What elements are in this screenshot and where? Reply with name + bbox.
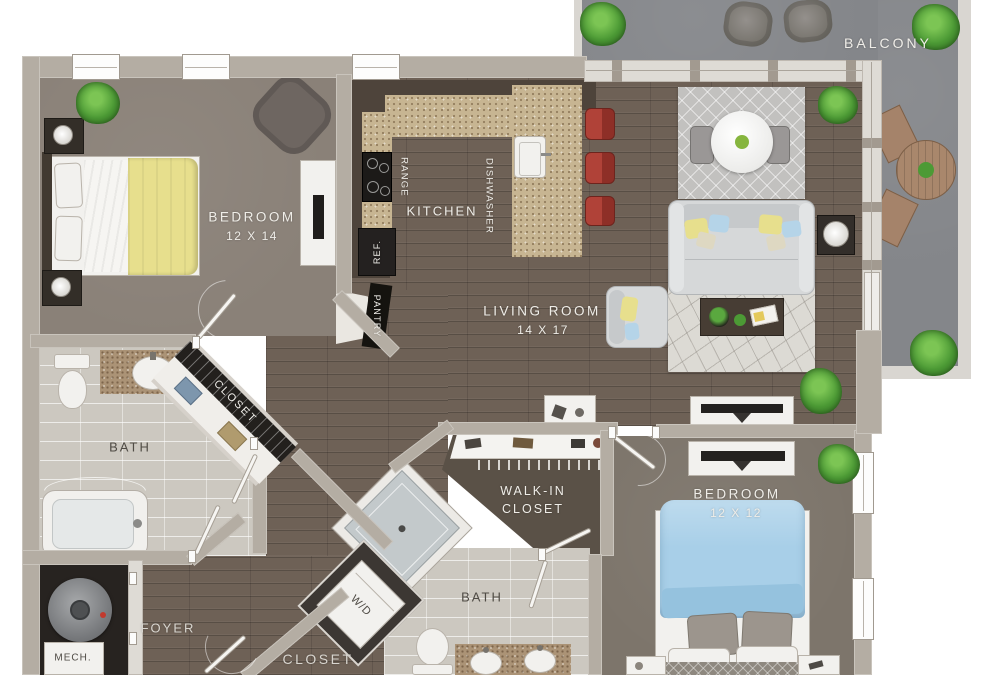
- pillow-accent: [766, 233, 787, 251]
- armchair: [606, 286, 668, 348]
- range-cooktop: [362, 152, 392, 202]
- mech-label: MECH.: [54, 653, 91, 664]
- tv: [701, 404, 783, 413]
- tv-mount: [733, 413, 751, 423]
- bedroom1-closet-label: CLOSET: [211, 378, 259, 426]
- dishwasher-label: DISHWASHER: [484, 158, 495, 234]
- nightstand-lamp: [51, 277, 71, 297]
- door-post: [538, 548, 546, 561]
- pillow-blue: [781, 220, 802, 238]
- shelf-item: [464, 438, 481, 449]
- shelf-item: [571, 439, 585, 448]
- bar-stool: [585, 108, 615, 140]
- small-plant: [734, 314, 746, 326]
- wall-walkin-top: [438, 422, 618, 435]
- decor-item: [635, 662, 643, 670]
- window-wall-balcony-top: [584, 60, 868, 82]
- bedroom1-tv-stand: [300, 160, 336, 266]
- pillow-yellow: [619, 296, 638, 322]
- window: [852, 578, 874, 640]
- window-post: [862, 202, 882, 212]
- burner: [367, 158, 378, 169]
- coffee-table: [700, 298, 784, 336]
- bath2-label: BATH: [461, 590, 503, 605]
- door-post: [129, 572, 137, 585]
- balcony-edge-right: [958, 0, 971, 378]
- bed2-blanket-pattern: [660, 662, 806, 675]
- bath2-sink: [524, 649, 556, 673]
- centerpiece: [735, 135, 749, 149]
- faucet: [483, 647, 489, 653]
- bar-stool: [585, 152, 615, 184]
- bar-stool: [585, 196, 615, 226]
- door-post: [188, 550, 196, 563]
- nightstand-lamp: [53, 125, 73, 145]
- window-post: [612, 60, 622, 82]
- tv: [701, 451, 785, 461]
- window-glass-line: [586, 70, 866, 71]
- window-post: [846, 60, 856, 82]
- plant: [910, 330, 958, 376]
- plant: [580, 2, 626, 46]
- table-plant: [918, 162, 934, 178]
- window: [352, 54, 400, 80]
- shelf-item: [513, 437, 534, 448]
- door-post: [608, 426, 616, 439]
- plant: [818, 86, 858, 124]
- decor-item: [575, 408, 584, 417]
- window-post: [862, 138, 882, 148]
- toilet-tank: [54, 354, 90, 369]
- sofa-seat-line: [685, 259, 798, 260]
- burner: [380, 186, 390, 196]
- living-label: LIVING ROOM: [483, 304, 601, 319]
- bedroom2-tv-console: [688, 441, 795, 476]
- living-tv-console: [690, 396, 794, 427]
- pantry-label: PANTRY: [372, 295, 382, 338]
- wall-bedroom1-right: [336, 74, 352, 294]
- window: [72, 54, 120, 80]
- toilet-tank: [412, 664, 453, 675]
- foyer-label: FOYER: [141, 621, 196, 636]
- window-wall-balcony-right: [862, 60, 882, 334]
- decor-item: [808, 660, 823, 669]
- range-label: RANGE: [399, 157, 410, 197]
- plant-bowl: [709, 307, 729, 327]
- bedroom1-dims: 12 X 14: [226, 229, 278, 243]
- book: [750, 304, 779, 326]
- sofa: [668, 200, 815, 295]
- burner: [367, 181, 379, 193]
- heater-core: [70, 600, 90, 620]
- sliding-door: [864, 272, 880, 332]
- plant: [76, 82, 120, 124]
- wall-living-right-lower: [856, 330, 882, 434]
- window-post: [690, 60, 700, 82]
- toilet-bowl: [58, 370, 87, 409]
- bed1-duvet-yellow: [128, 158, 198, 275]
- wall-left: [22, 56, 40, 675]
- bath1-label: BATH: [109, 440, 151, 455]
- tv: [313, 195, 324, 239]
- wall-bath1-bottom: [22, 550, 192, 565]
- window-post: [768, 60, 778, 82]
- wall-bath2-right: [588, 554, 602, 675]
- wall-living-bedroom2: [656, 424, 868, 438]
- door-post: [192, 336, 200, 349]
- bed1-sheet: [84, 160, 132, 272]
- decor-item: [551, 404, 566, 419]
- plant: [818, 444, 860, 484]
- bathtub: [42, 490, 148, 558]
- hanger-rod: [478, 460, 602, 470]
- balcony-table: [896, 140, 956, 200]
- bedroom1-label: BEDROOM: [208, 210, 295, 225]
- balcony-label: BALCONY: [844, 35, 932, 51]
- side-table-lamp: [823, 221, 849, 247]
- bed1-headboard: [42, 152, 52, 280]
- dining-table: [711, 111, 773, 173]
- pillow-blue: [708, 214, 730, 233]
- nightstand: [798, 655, 840, 675]
- door-post: [652, 426, 660, 439]
- tub-faucet: [133, 519, 142, 528]
- plant: [800, 368, 842, 414]
- refrigerator-label: REF.: [372, 240, 382, 264]
- window-post: [862, 260, 882, 270]
- living-dims: 14 X 17: [517, 323, 569, 337]
- kitchen-label: KITCHEN: [406, 204, 477, 219]
- laundry-label: W/D: [348, 593, 374, 619]
- burner: [379, 163, 389, 173]
- book-stripe: [753, 311, 765, 322]
- bed1-pillow: [54, 162, 83, 208]
- tv-mount: [733, 461, 751, 471]
- window-glass-line: [871, 62, 872, 332]
- pillow-accent: [695, 231, 716, 250]
- toilet-bowl: [416, 628, 449, 666]
- window: [182, 54, 230, 80]
- walkin-label-line1: WALK-IN: [500, 484, 566, 498]
- wall-walkin-right: [600, 430, 614, 556]
- wall-bedroom1-bottom: [30, 334, 196, 348]
- nightstand: [626, 656, 666, 675]
- faucet: [150, 352, 156, 360]
- door-post: [129, 632, 137, 645]
- kitchen-sink: [514, 136, 546, 178]
- water-heater: [48, 578, 112, 642]
- faucet: [537, 645, 543, 651]
- sofa-arm: [670, 203, 684, 292]
- bedroom2-dims: 12 X 12: [710, 506, 762, 520]
- bedroom2-label: BEDROOM: [693, 487, 780, 502]
- bath2-sink: [470, 651, 502, 675]
- tub-basin: [52, 499, 134, 549]
- pillow-yellow: [758, 214, 783, 235]
- heater-valve: [100, 612, 106, 618]
- pillow-blue: [624, 322, 640, 340]
- walkin-label-line2: CLOSET: [502, 502, 564, 516]
- sofa-arm: [799, 203, 813, 292]
- floor-plan: W/D: [0, 0, 1000, 675]
- bed1-pillow: [54, 216, 83, 262]
- faucet: [541, 153, 551, 156]
- entry-closet-label: CLOSET: [282, 651, 353, 667]
- sink-basin: [519, 142, 541, 176]
- door-post: [250, 437, 258, 450]
